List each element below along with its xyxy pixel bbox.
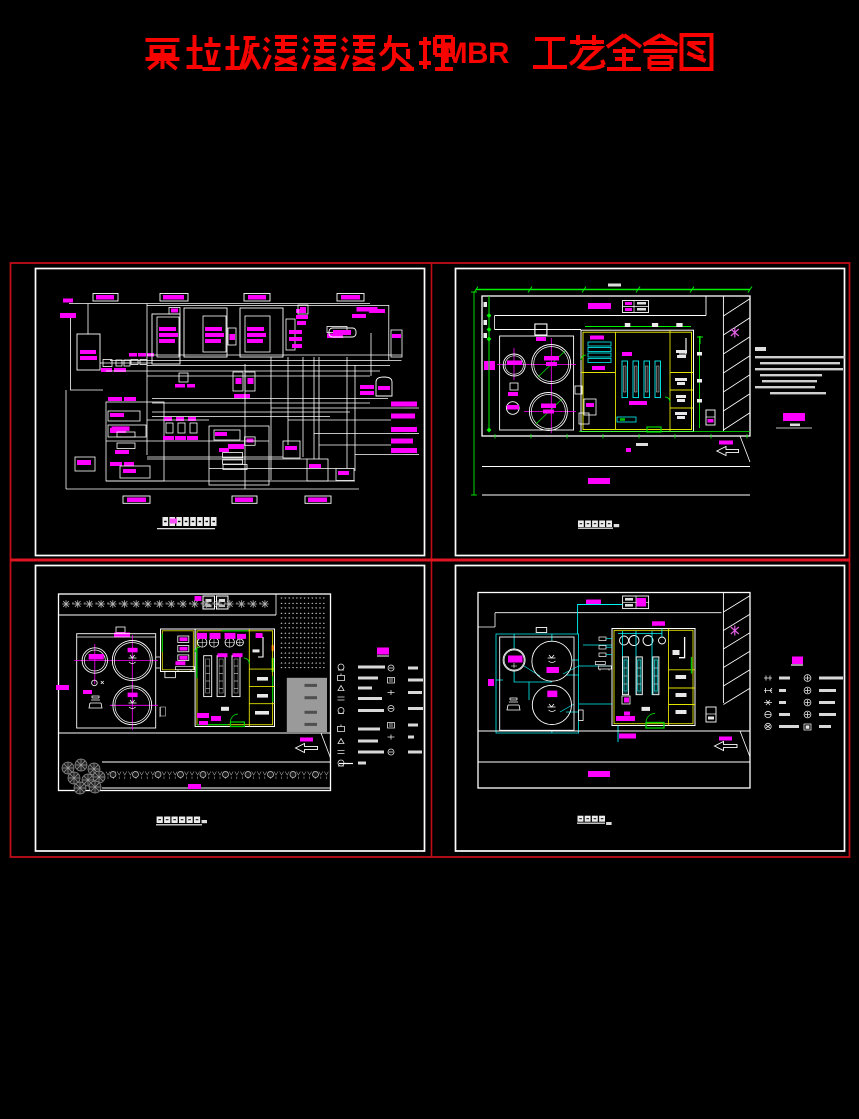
svg-text:MBR: MBR bbox=[443, 37, 509, 70]
